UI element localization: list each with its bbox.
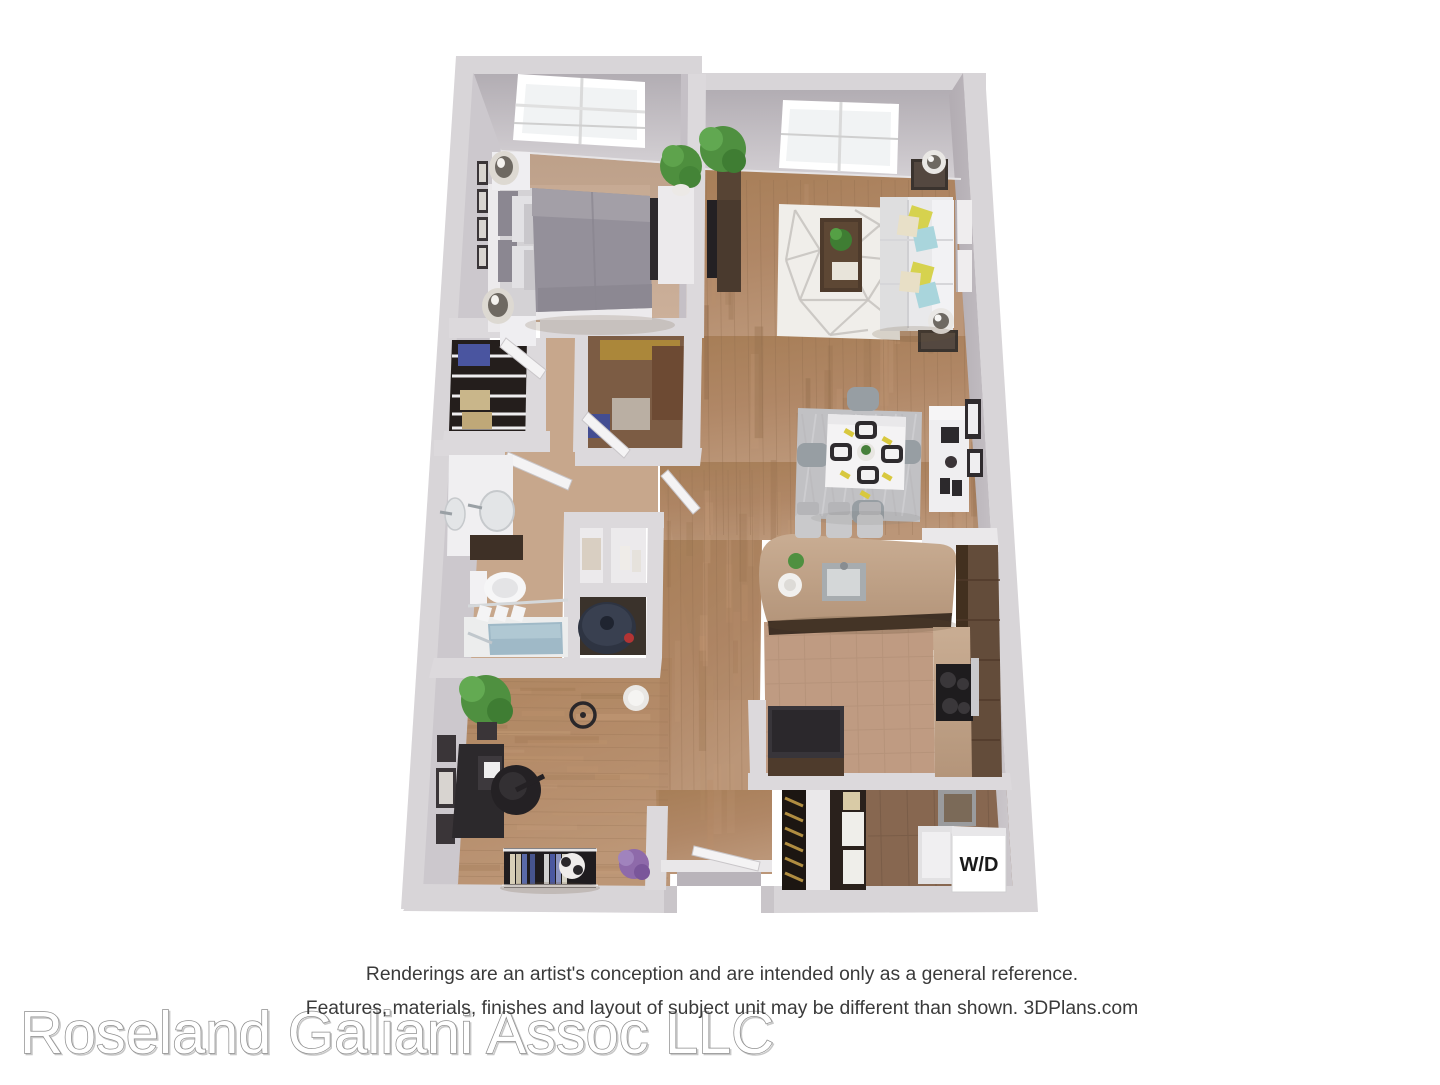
svg-text:Features, materials, finishes: Features, materials, finishes and layout… <box>306 998 1138 1019</box>
svg-text:Renderings are an artist's con: Renderings are an artist's conception an… <box>366 964 1078 985</box>
svg-text:W/D: W/D <box>960 854 999 876</box>
